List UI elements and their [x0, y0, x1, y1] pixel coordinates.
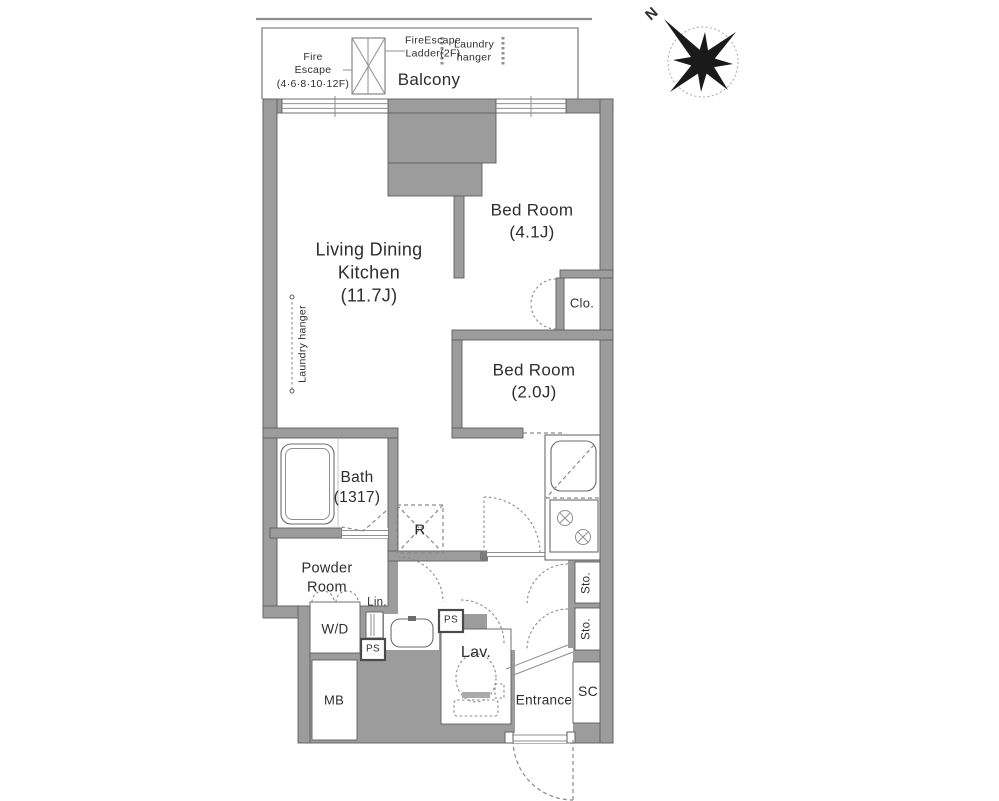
washer-dryer-label: W/D — [321, 620, 348, 637]
meter-box-label: MB — [324, 693, 344, 710]
shoe-closet-label: SC — [578, 683, 598, 701]
wall-segment — [452, 330, 613, 340]
ldk-label: Living Dining Kitchen (11.7J) — [316, 238, 423, 307]
indoor-laundry-hanger-label: Laundry hanger — [296, 305, 309, 383]
compass-rose — [664, 19, 738, 97]
wall-segment — [388, 99, 496, 113]
pillar — [388, 163, 482, 196]
fire-escape-hatch-icon — [352, 38, 385, 94]
powder-room-label: Powder Room — [302, 559, 353, 596]
wall-segment — [270, 528, 342, 538]
wall-segment — [452, 428, 523, 438]
pipe-space-label: PS — [366, 644, 380, 657]
wall-segment — [452, 340, 462, 428]
linen-label: Lin. — [367, 596, 387, 611]
storage-lower-label: Sto. — [580, 618, 595, 640]
floor-plan: Balcony Laundry hanger Fire Escape (4·6·… — [0, 0, 999, 801]
bathtub-icon — [281, 438, 338, 528]
refrigerator-label: R — [414, 520, 425, 539]
entrance-label: Entrance — [516, 691, 572, 708]
bedroom2-label: Bed Room (2.0J) — [493, 359, 576, 403]
wall-segment — [454, 196, 464, 278]
wall-segment — [600, 99, 613, 743]
lavatory-label: Lav. — [461, 643, 491, 663]
balcony-label: Balcony — [398, 69, 461, 91]
stove-icon — [550, 500, 598, 552]
wall-segment — [556, 278, 564, 330]
entrance-door-arc — [513, 740, 573, 800]
wash-basin-icon — [391, 616, 433, 647]
bedroom1-label: Bed Room (4.1J) — [491, 199, 574, 243]
wall-segment — [263, 428, 398, 438]
bath-label: Bath (1317) — [334, 468, 381, 508]
sanitary-floor — [398, 560, 487, 614]
wall-segment — [298, 606, 310, 743]
closet-label: Clo. — [570, 296, 594, 313]
fire-escape-ladder-label: FireEscape Ladder(2F) — [405, 35, 461, 62]
kitchen-counter-icon — [545, 435, 600, 560]
storage-upper-label: Sto. — [580, 572, 595, 594]
wall-segment — [560, 270, 613, 278]
kitchen-sink-icon — [551, 441, 596, 491]
pipe-space-label: PS — [444, 615, 458, 628]
pillar — [388, 113, 496, 163]
fire-escape-label: Fire Escape (4·6·8·10·12F) — [277, 51, 349, 91]
